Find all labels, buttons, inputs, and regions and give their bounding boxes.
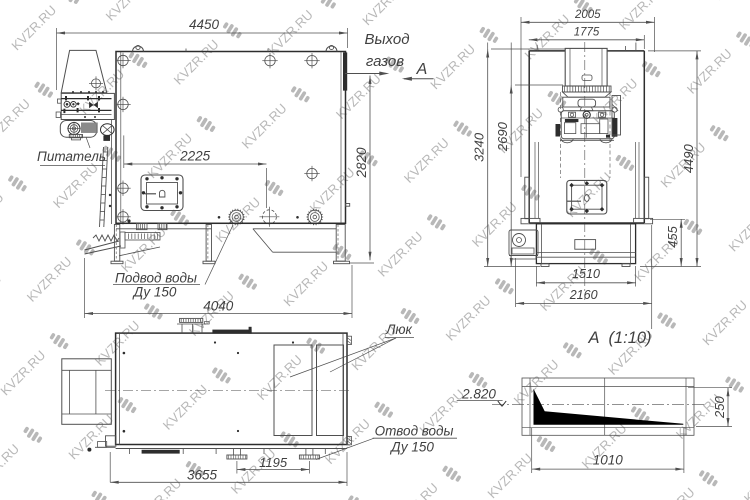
svg-text:2005: 2005 <box>574 9 601 21</box>
svg-text:Ду 150: Ду 150 <box>132 285 177 300</box>
svg-text:Отвод воды: Отвод воды <box>375 424 454 439</box>
svg-text:1195: 1195 <box>259 455 288 470</box>
svg-text:4040: 4040 <box>203 299 234 314</box>
svg-text:4490: 4490 <box>681 143 696 173</box>
svg-text:2160: 2160 <box>569 288 598 302</box>
svg-text:455: 455 <box>665 225 680 247</box>
svg-text:2690: 2690 <box>495 121 510 152</box>
svg-text:(1:10): (1:10) <box>608 329 651 347</box>
svg-text:3240: 3240 <box>472 132 487 162</box>
svg-text:1775: 1775 <box>574 27 600 39</box>
svg-text:2820: 2820 <box>354 147 369 179</box>
svg-text:250: 250 <box>712 395 727 418</box>
svg-text:Питатель: Питатель <box>37 149 106 164</box>
svg-text:Ду 150: Ду 150 <box>389 440 434 455</box>
svg-text:A: A <box>587 329 599 347</box>
svg-text:газов: газов <box>366 53 404 70</box>
svg-text:2.820: 2.820 <box>461 386 496 401</box>
svg-text:1510: 1510 <box>572 267 600 281</box>
svg-text:2225: 2225 <box>179 149 211 164</box>
svg-text:3655: 3655 <box>187 468 218 483</box>
svg-text:A: A <box>416 61 428 78</box>
svg-text:4450: 4450 <box>189 17 220 32</box>
svg-text:Люк: Люк <box>385 322 412 337</box>
svg-text:1010: 1010 <box>593 453 624 468</box>
svg-text:Выход: Выход <box>364 31 409 48</box>
svg-text:Подвод воды: Подвод воды <box>115 271 197 286</box>
